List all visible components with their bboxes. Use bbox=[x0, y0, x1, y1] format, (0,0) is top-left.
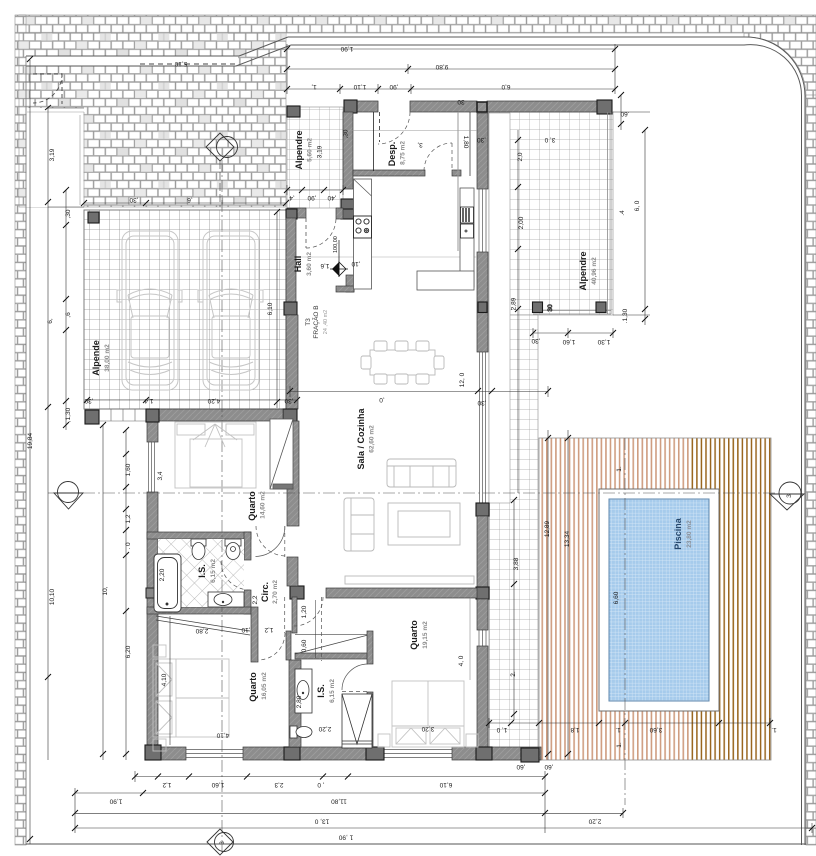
svg-text:Quarto: Quarto bbox=[409, 620, 419, 650]
svg-text:6,60: 6,60 bbox=[613, 591, 620, 604]
svg-text:Circ.: Circ. bbox=[260, 582, 270, 602]
svg-text:23,80 m2: 23,80 m2 bbox=[686, 520, 693, 548]
svg-text:I.S.: I.S. bbox=[316, 684, 326, 698]
svg-text:2,20: 2,20 bbox=[588, 818, 601, 825]
svg-text:1.: 1. bbox=[771, 726, 777, 733]
svg-text:1,60: 1,60 bbox=[211, 781, 224, 788]
svg-text:Alpende: Alpende bbox=[91, 340, 101, 376]
svg-text:3,60: 3,60 bbox=[649, 726, 662, 733]
svg-text:5,60 m2: 5,60 m2 bbox=[307, 138, 314, 162]
svg-text:1,20: 1,20 bbox=[301, 605, 308, 618]
svg-text:Desp.: Desp. bbox=[387, 142, 397, 167]
svg-text:,30: ,30 bbox=[284, 397, 293, 404]
svg-text:38,00 m2: 38,00 m2 bbox=[104, 344, 111, 372]
svg-text:3,: 3, bbox=[417, 141, 423, 148]
svg-text:,90: ,90 bbox=[307, 194, 316, 201]
svg-text:1,2: 1,2 bbox=[264, 626, 273, 633]
svg-text:Sala / Cozinha: Sala / Cozinha bbox=[356, 407, 366, 469]
svg-text:0,60: 0,60 bbox=[301, 639, 308, 652]
svg-text:1,60: 1,60 bbox=[125, 463, 132, 476]
svg-text:,10: ,10 bbox=[351, 260, 360, 267]
svg-text:13,34: 13,34 bbox=[564, 530, 571, 547]
svg-text:. 0: . 0 bbox=[125, 542, 132, 550]
svg-text:30: 30 bbox=[547, 304, 554, 312]
svg-text:3: 3 bbox=[786, 494, 793, 498]
svg-text:1,80: 1,80 bbox=[462, 136, 469, 149]
svg-text:6,0: 6,0 bbox=[501, 83, 510, 90]
svg-text:,30: ,30 bbox=[84, 397, 93, 404]
svg-text:2,2: 2,2 bbox=[252, 595, 259, 604]
svg-text:I.S.: I.S. bbox=[197, 564, 207, 578]
svg-text:.1,30: .1,30 bbox=[622, 308, 629, 323]
svg-text:2.: 2. bbox=[510, 671, 517, 677]
svg-text:,60: ,60 bbox=[544, 763, 553, 770]
svg-text:,1,30: ,1,30 bbox=[65, 407, 72, 422]
svg-text:,4: ,4 bbox=[289, 194, 295, 201]
svg-text:12,89: 12,89 bbox=[544, 520, 551, 537]
svg-text:,30: ,30 bbox=[531, 337, 540, 344]
svg-text:3,60 m2: 3,60 m2 bbox=[306, 252, 313, 276]
svg-text:1,60: 1,60 bbox=[562, 338, 575, 345]
svg-text:16,05 m2: 16,05 m2 bbox=[261, 672, 268, 700]
svg-text:T3: T3 bbox=[305, 318, 312, 326]
svg-text:2,00: 2,00 bbox=[518, 216, 525, 229]
svg-text:FRAÇÃO B: FRAÇÃO B bbox=[311, 305, 320, 338]
svg-text:1.: 1. bbox=[615, 726, 621, 733]
svg-text:3,88: 3,88 bbox=[513, 557, 520, 570]
svg-text:,6: ,6 bbox=[187, 196, 193, 203]
svg-text:,30: ,30 bbox=[65, 209, 72, 218]
svg-text:5,10: 5,10 bbox=[174, 60, 187, 67]
svg-text:Quarto: Quarto bbox=[247, 491, 257, 521]
svg-text:2,20: 2,20 bbox=[318, 725, 331, 732]
svg-text:Alpendre: Alpendre bbox=[578, 251, 588, 290]
svg-text:2,80: 2,80 bbox=[195, 627, 208, 634]
svg-text:6,10: 6,10 bbox=[439, 781, 452, 788]
svg-text:3, 0: 3, 0 bbox=[544, 136, 555, 143]
svg-text:,30: ,30 bbox=[477, 399, 486, 406]
svg-text:3,19: 3,19 bbox=[317, 145, 324, 158]
svg-text:,0: ,0 bbox=[379, 396, 385, 403]
svg-text:,40: ,40 bbox=[327, 194, 336, 201]
svg-text:3,20: 3,20 bbox=[421, 725, 434, 732]
svg-text:,90: ,90 bbox=[389, 83, 398, 90]
svg-text:1 ,90: 1 ,90 bbox=[338, 834, 353, 841]
svg-text:6,: 6, bbox=[47, 318, 54, 324]
svg-text:.60: .60 bbox=[620, 110, 629, 117]
svg-text:11,80: 11,80 bbox=[331, 798, 347, 805]
svg-text:13, 0: 13, 0 bbox=[314, 818, 329, 825]
svg-text:30: 30 bbox=[457, 98, 465, 105]
svg-text:10,10: 10,10 bbox=[49, 588, 56, 605]
svg-text:1,4: 1,4 bbox=[144, 397, 153, 404]
svg-text:1,30: 1,30 bbox=[597, 338, 610, 345]
svg-text:4,10: 4,10 bbox=[161, 673, 168, 686]
svg-text:19,15 m2: 19,15 m2 bbox=[422, 621, 429, 649]
svg-text:6,20: 6,20 bbox=[125, 645, 132, 658]
svg-text:4,20: 4,20 bbox=[207, 397, 220, 404]
svg-text:2,0: 2,0 bbox=[517, 152, 524, 161]
svg-text:3,4: 3,4 bbox=[157, 471, 164, 480]
svg-text:Quarto: Quarto bbox=[248, 672, 258, 702]
svg-text:19,84: 19,84 bbox=[27, 432, 34, 449]
svg-text:62,60 m2: 62,60 m2 bbox=[369, 425, 376, 453]
svg-text:6,15 m2: 6,15 m2 bbox=[210, 559, 217, 583]
svg-text:,6: ,6 bbox=[65, 312, 72, 318]
svg-text:, 0: , 0 bbox=[317, 781, 325, 788]
svg-text:6, 0: 6, 0 bbox=[634, 200, 641, 211]
svg-text:9,80: 9,80 bbox=[435, 63, 448, 70]
svg-text:1.: 1. bbox=[616, 742, 623, 748]
svg-text:1,10: 1,10 bbox=[353, 83, 366, 90]
svg-text:,30: ,30 bbox=[343, 129, 350, 138]
svg-text:100,00: 100,00 bbox=[333, 236, 339, 253]
svg-text:4,10: 4,10 bbox=[216, 732, 229, 739]
svg-text:1.: 1. bbox=[616, 466, 623, 472]
svg-text:14,60 m2: 14,60 m2 bbox=[260, 491, 267, 519]
svg-text:,10: ,10 bbox=[241, 626, 250, 633]
svg-text:2,3: 2,3 bbox=[274, 781, 283, 788]
svg-text:24 ,40 m2: 24 ,40 m2 bbox=[323, 310, 329, 334]
svg-text:1,2: 1,2 bbox=[162, 781, 171, 788]
svg-text:40,96 m2: 40,96 m2 bbox=[591, 257, 598, 285]
svg-text:Alpendre: Alpendre bbox=[294, 130, 304, 169]
svg-text:10,: 10, bbox=[102, 586, 109, 595]
svg-text:,30: ,30 bbox=[477, 136, 486, 143]
svg-text:8,75 m2: 8,75 m2 bbox=[400, 141, 407, 165]
svg-text:Hall: Hall bbox=[293, 256, 303, 273]
svg-text:6,15 m2: 6,15 m2 bbox=[329, 679, 336, 703]
svg-text:2,80: 2,80 bbox=[296, 695, 303, 708]
svg-text:6,10: 6,10 bbox=[267, 302, 274, 315]
svg-text:1,90: 1,90 bbox=[109, 798, 122, 805]
svg-text:.4: .4 bbox=[619, 210, 626, 216]
svg-text:1,6: 1,6 bbox=[320, 262, 329, 269]
svg-text:,60: ,60 bbox=[516, 763, 525, 770]
svg-text:4, 0: 4, 0 bbox=[458, 655, 465, 666]
svg-text:2,70 m2: 2,70 m2 bbox=[272, 580, 279, 604]
svg-text:3,19: 3,19 bbox=[49, 148, 56, 161]
svg-text:1,8: 1,8 bbox=[570, 726, 579, 733]
svg-text:1,2: 1,2 bbox=[125, 514, 132, 523]
svg-text:,30: ,30 bbox=[129, 196, 138, 203]
svg-text:2,20: 2,20 bbox=[159, 568, 166, 581]
svg-text:1,: 1, bbox=[311, 83, 317, 90]
svg-text:12, 0: 12, 0 bbox=[459, 372, 466, 387]
svg-text:1,90: 1,90 bbox=[340, 45, 353, 52]
svg-text:Piscina: Piscina bbox=[673, 517, 683, 550]
svg-text:2,89: 2,89 bbox=[511, 297, 518, 310]
svg-text:1, 0: 1, 0 bbox=[496, 726, 507, 733]
